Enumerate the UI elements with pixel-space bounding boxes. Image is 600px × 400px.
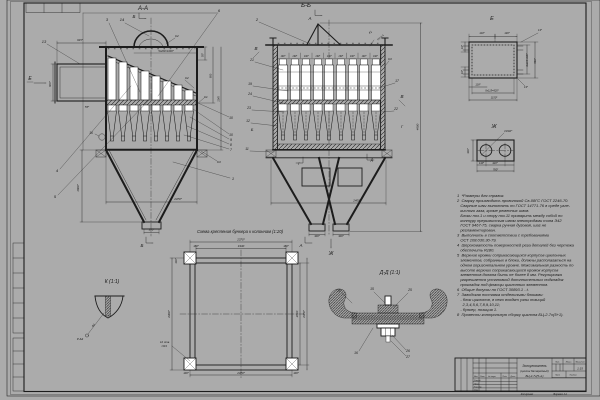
label: 20	[336, 289, 341, 293]
label: 100*	[183, 371, 189, 375]
label: Золоуловитель	[522, 364, 547, 368]
view-e: Е 110*130*13*10*10*3х210=630*860*118*8х1…	[460, 16, 543, 101]
label: 10	[229, 133, 233, 137]
label: ∅202*	[504, 129, 513, 133]
label: 2370*	[236, 371, 245, 375]
label: 1930	[238, 244, 245, 248]
k-leader	[88, 313, 104, 334]
label: А	[298, 243, 302, 248]
label: 3	[106, 17, 109, 22]
label: 118*	[475, 83, 481, 87]
label: К1	[368, 29, 373, 34]
bb-cone-collars	[279, 104, 380, 111]
label: Н.контр.	[474, 387, 482, 389]
label: 5	[54, 194, 57, 199]
section-marker-b-top	[139, 13, 146, 19]
label: 190*	[315, 56, 320, 58]
label: ∅23	[161, 344, 167, 348]
label: 190*	[281, 56, 286, 58]
label: 190*	[373, 56, 378, 58]
label: Лит.	[554, 362, 560, 364]
label: 3х210=630*	[526, 52, 529, 66]
label: 110*	[479, 31, 485, 35]
label: К1	[204, 95, 208, 99]
note-line: 8 Провести контрольную сборку циклона БЦ…	[457, 312, 564, 317]
left-margin-stamps	[13, 243, 24, 391]
label: 1	[232, 176, 234, 181]
dd-upper-plate	[352, 313, 424, 318]
label: 100*	[174, 257, 178, 263]
label: 21	[249, 58, 254, 62]
label: 800	[209, 73, 213, 78]
aa-cone-tails	[111, 136, 191, 141]
label: 13	[42, 39, 47, 44]
label: 190*	[362, 56, 367, 58]
label: 4600	[416, 123, 420, 130]
label: Масса	[566, 362, 572, 364]
label: 15	[370, 287, 374, 291]
scanned-drawing-page: А-А	[0, 0, 600, 400]
label: Р-∆3	[77, 337, 84, 341]
label: 12	[246, 119, 250, 123]
label: 180*	[193, 244, 199, 248]
label: 8х115=920*	[485, 90, 499, 93]
label: 2370*	[236, 238, 245, 242]
label: 300*	[149, 228, 156, 232]
aa-cones	[108, 111, 194, 136]
label: 26	[405, 349, 410, 353]
label: ∆4	[91, 322, 96, 327]
view-k-title: К (1:1)	[105, 279, 120, 285]
label: 100*	[293, 371, 299, 375]
label: 11	[245, 147, 249, 151]
label: 140*	[479, 161, 485, 165]
aa-tube-plate	[107, 100, 196, 105]
label: 55*	[201, 52, 205, 57]
aa-cone-collars	[108, 105, 193, 111]
label: 5х200=1000*	[158, 49, 174, 53]
label: 130*	[504, 31, 510, 35]
label: В	[254, 46, 257, 51]
label: 22	[393, 107, 398, 111]
label: 420*	[492, 161, 498, 165]
label: Г	[401, 124, 404, 129]
bb-labels: А2В2119242312Б11К317В22ГК1Н1-3,446002400…	[245, 16, 419, 257]
k-labels: ∆4Р-∆3	[77, 322, 96, 341]
drawing-sheet: А-А	[0, 0, 600, 400]
bb-manhole-right	[338, 168, 362, 186]
k-web-plate	[106, 296, 111, 316]
aa-cyclone-tubes	[108, 58, 193, 100]
label: 17	[395, 79, 399, 83]
label: 25	[407, 288, 412, 292]
label: 1600*	[76, 183, 80, 191]
section-marker-b-bottom	[146, 237, 153, 243]
label: 23	[246, 106, 251, 110]
view-aa-title: А-А	[137, 6, 148, 12]
label: (циклон батарейный)	[520, 369, 549, 373]
label: К2	[175, 34, 179, 38]
label: № докум.	[488, 375, 496, 378]
label: 2	[255, 17, 259, 22]
schema-title: Схема крепления бункера к колоннам (1:20…	[197, 229, 284, 234]
bb-dimensions	[271, 23, 422, 236]
view-zh-title: Ж	[490, 124, 497, 130]
label: 4	[56, 168, 59, 173]
bb-cones	[278, 111, 380, 135]
label: Е	[28, 76, 32, 82]
bb-cone-tails	[282, 135, 378, 140]
label: Утв.	[474, 390, 479, 392]
label: 190*	[350, 56, 355, 58]
label: 16	[89, 131, 93, 135]
label: 6	[218, 8, 221, 13]
label: 19	[248, 82, 252, 86]
view-k: К (1:1) ∆4Р-∆3	[77, 279, 124, 341]
e-labels: 110*130*13*10*10*3х210=630*860*118*8х115…	[460, 28, 543, 100]
label: 2400*	[352, 199, 361, 203]
label: Лист	[479, 376, 485, 378]
label: 2400*	[167, 309, 171, 318]
label: К3	[217, 160, 221, 164]
e-bolt-holes	[472, 45, 514, 75]
aa-inlet-duct	[55, 62, 106, 140]
label: Ж	[328, 251, 334, 257]
label: А	[307, 16, 311, 21]
view-bb: Б-Б	[245, 3, 422, 257]
label: 14	[120, 17, 125, 22]
aa-supports	[96, 150, 207, 157]
label: 190*	[327, 56, 332, 58]
label: БЦ-2-7х(5+1)	[525, 374, 543, 378]
label: Н1-3,4	[377, 34, 385, 41]
label: 8	[230, 143, 232, 147]
label: 7	[230, 148, 232, 152]
label: К2	[185, 76, 189, 80]
label: Копировал	[521, 393, 534, 396]
label: 9	[230, 138, 232, 142]
label: 16	[354, 351, 358, 355]
label: К3	[388, 57, 392, 61]
label: В	[400, 94, 403, 99]
view-e-title: Е	[490, 16, 494, 22]
view-dd-title: Д-Д (1:1)	[379, 270, 401, 276]
label: 180*	[283, 244, 289, 248]
label: 1150*	[491, 96, 499, 100]
title-block: Золоуловитель(циклон батарейный)БЦ-2-7х(…	[455, 358, 586, 396]
aa-hopper	[106, 150, 197, 229]
label: 190*	[292, 56, 297, 58]
label: 2370*	[173, 197, 182, 201]
label: Дата	[510, 376, 516, 378]
label: Подп.	[503, 375, 508, 378]
label: 915*	[77, 38, 84, 42]
label: 190*	[338, 56, 343, 58]
label: 24	[247, 92, 252, 96]
label: 1145	[217, 96, 221, 102]
technical-notes: 1 *Размеры для справок.2 Сварку производ…	[456, 193, 575, 317]
label: 2210	[295, 310, 299, 318]
top-left-stamp	[26, 3, 80, 13]
zh-dia-leader	[481, 133, 504, 156]
dd-lower-plate	[352, 319, 424, 324]
label: 190*	[304, 56, 309, 58]
k-weld-marker	[85, 334, 88, 337]
label: Б	[141, 243, 144, 248]
e-flange	[469, 42, 517, 78]
label: 13*	[524, 85, 529, 89]
label: Пров.	[474, 383, 479, 385]
view-bb-title: Б-Б	[301, 3, 311, 9]
label: 27	[405, 355, 410, 359]
bb-tube-plate	[277, 100, 380, 104]
view-schema: Схема крепления бункера к колоннам (1:20…	[160, 229, 309, 378]
label: 55*	[85, 105, 90, 109]
label: 10*	[460, 44, 464, 49]
label: 300*	[466, 147, 470, 153]
bb-element-tubes	[278, 65, 380, 100]
label: Б	[133, 14, 136, 19]
bb-element-caps	[280, 59, 380, 65]
label: 1:15	[577, 367, 583, 371]
label: Б	[251, 127, 254, 132]
view-aa: А-А	[27, 6, 234, 248]
label: Листов	[569, 375, 577, 377]
label: 900*	[48, 80, 52, 87]
section-marker-a-top	[315, 10, 322, 16]
label: Изм.	[474, 376, 478, 378]
label: 2370*	[302, 309, 306, 318]
label: 13*	[538, 28, 543, 32]
label: Лист	[554, 375, 560, 377]
view-dd: Д-Д (1:1) 201525162627	[329, 270, 447, 359]
view-zh: Ж ∅202*300*140*420*760*	[466, 124, 514, 172]
label: Формат А1	[553, 393, 567, 396]
label: Разраб.	[474, 380, 481, 382]
aa-labels: Б314613Е451101098716К2К2К1К3915*55*900*5…	[28, 8, 234, 248]
schema-frame	[180, 250, 304, 378]
label: 10	[229, 116, 233, 120]
label: Г	[298, 162, 301, 166]
label: Масштаб	[576, 362, 586, 364]
